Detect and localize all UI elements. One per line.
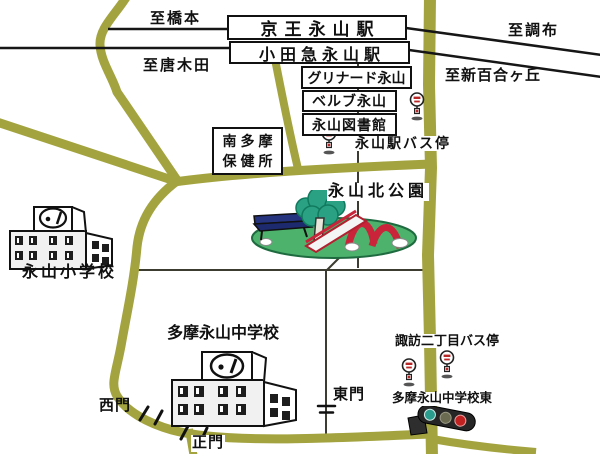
label-junior-high-school: 多摩永山中学校 <box>167 325 279 343</box>
label-main-gate: 正門 <box>191 435 225 452</box>
road-west-diagonal <box>0 122 178 182</box>
bus-stop-icon-suwa-1 <box>441 351 454 378</box>
junior-high-school-building-icon <box>168 348 303 428</box>
road-east-vertical <box>428 0 432 454</box>
station-name-keio: 京王永山駅 <box>254 15 381 40</box>
health-center-line2: 保健所 <box>219 151 277 171</box>
station-box-keio-nagayama: 京王永山駅 <box>227 15 407 40</box>
label-to-hashimoto: 至橋本 <box>150 11 201 28</box>
elementary-school-building-icon <box>8 203 118 271</box>
label-suwa-2chome-bus-stop: 諏訪二丁目バス停 <box>394 334 500 348</box>
school-clock <box>40 209 66 228</box>
station-box-odakyu-nagayama: 小田急永山駅 <box>229 41 410 64</box>
bus-stop-icon-nagayama-1 <box>411 93 424 120</box>
label-to-karakida: 至唐木田 <box>143 58 211 75</box>
traffic-light-icon <box>408 404 477 435</box>
label-west-gate: 西門 <box>99 398 131 415</box>
label-to-shin-yurigaoka: 至新百合ヶ丘 <box>445 68 541 85</box>
label-east-gate: 東門 <box>332 387 366 404</box>
area-map: 至橋本 至調布 至唐木田 至新百合ヶ丘 京王永山駅 小田急永山駅 グリナード永山… <box>0 0 600 454</box>
label-school-east-intersection: 多摩永山中学校東 <box>391 392 493 406</box>
park-illustration <box>248 190 420 262</box>
road-southeast-spur <box>432 439 536 452</box>
label-elementary-school: 永山小学校 <box>22 264 117 282</box>
school-clock <box>211 355 243 378</box>
landmark-box-health-center: 南多摩 保健所 <box>212 127 283 175</box>
landmark-name-belb: ベルブ永山 <box>312 91 387 111</box>
health-center-line1: 南多摩 <box>219 131 277 151</box>
landmark-name-library: 永山図書館 <box>312 115 387 135</box>
label-nagayama-station-bus-stop: 永山駅バス停 <box>354 136 452 151</box>
landmark-box-grinard: グリナード永山 <box>301 66 412 89</box>
bus-stop-icon-suwa-2 <box>403 359 416 386</box>
label-park: 永山北公園 <box>327 183 429 201</box>
landmark-name-grinard: グリナード永山 <box>308 68 406 88</box>
label-to-chofu: 至調布 <box>508 23 559 40</box>
station-name-odakyu: 小田急永山駅 <box>254 41 385 65</box>
landmark-box-library: 永山図書館 <box>302 113 397 136</box>
landmark-box-belb: ベルブ永山 <box>302 90 397 112</box>
